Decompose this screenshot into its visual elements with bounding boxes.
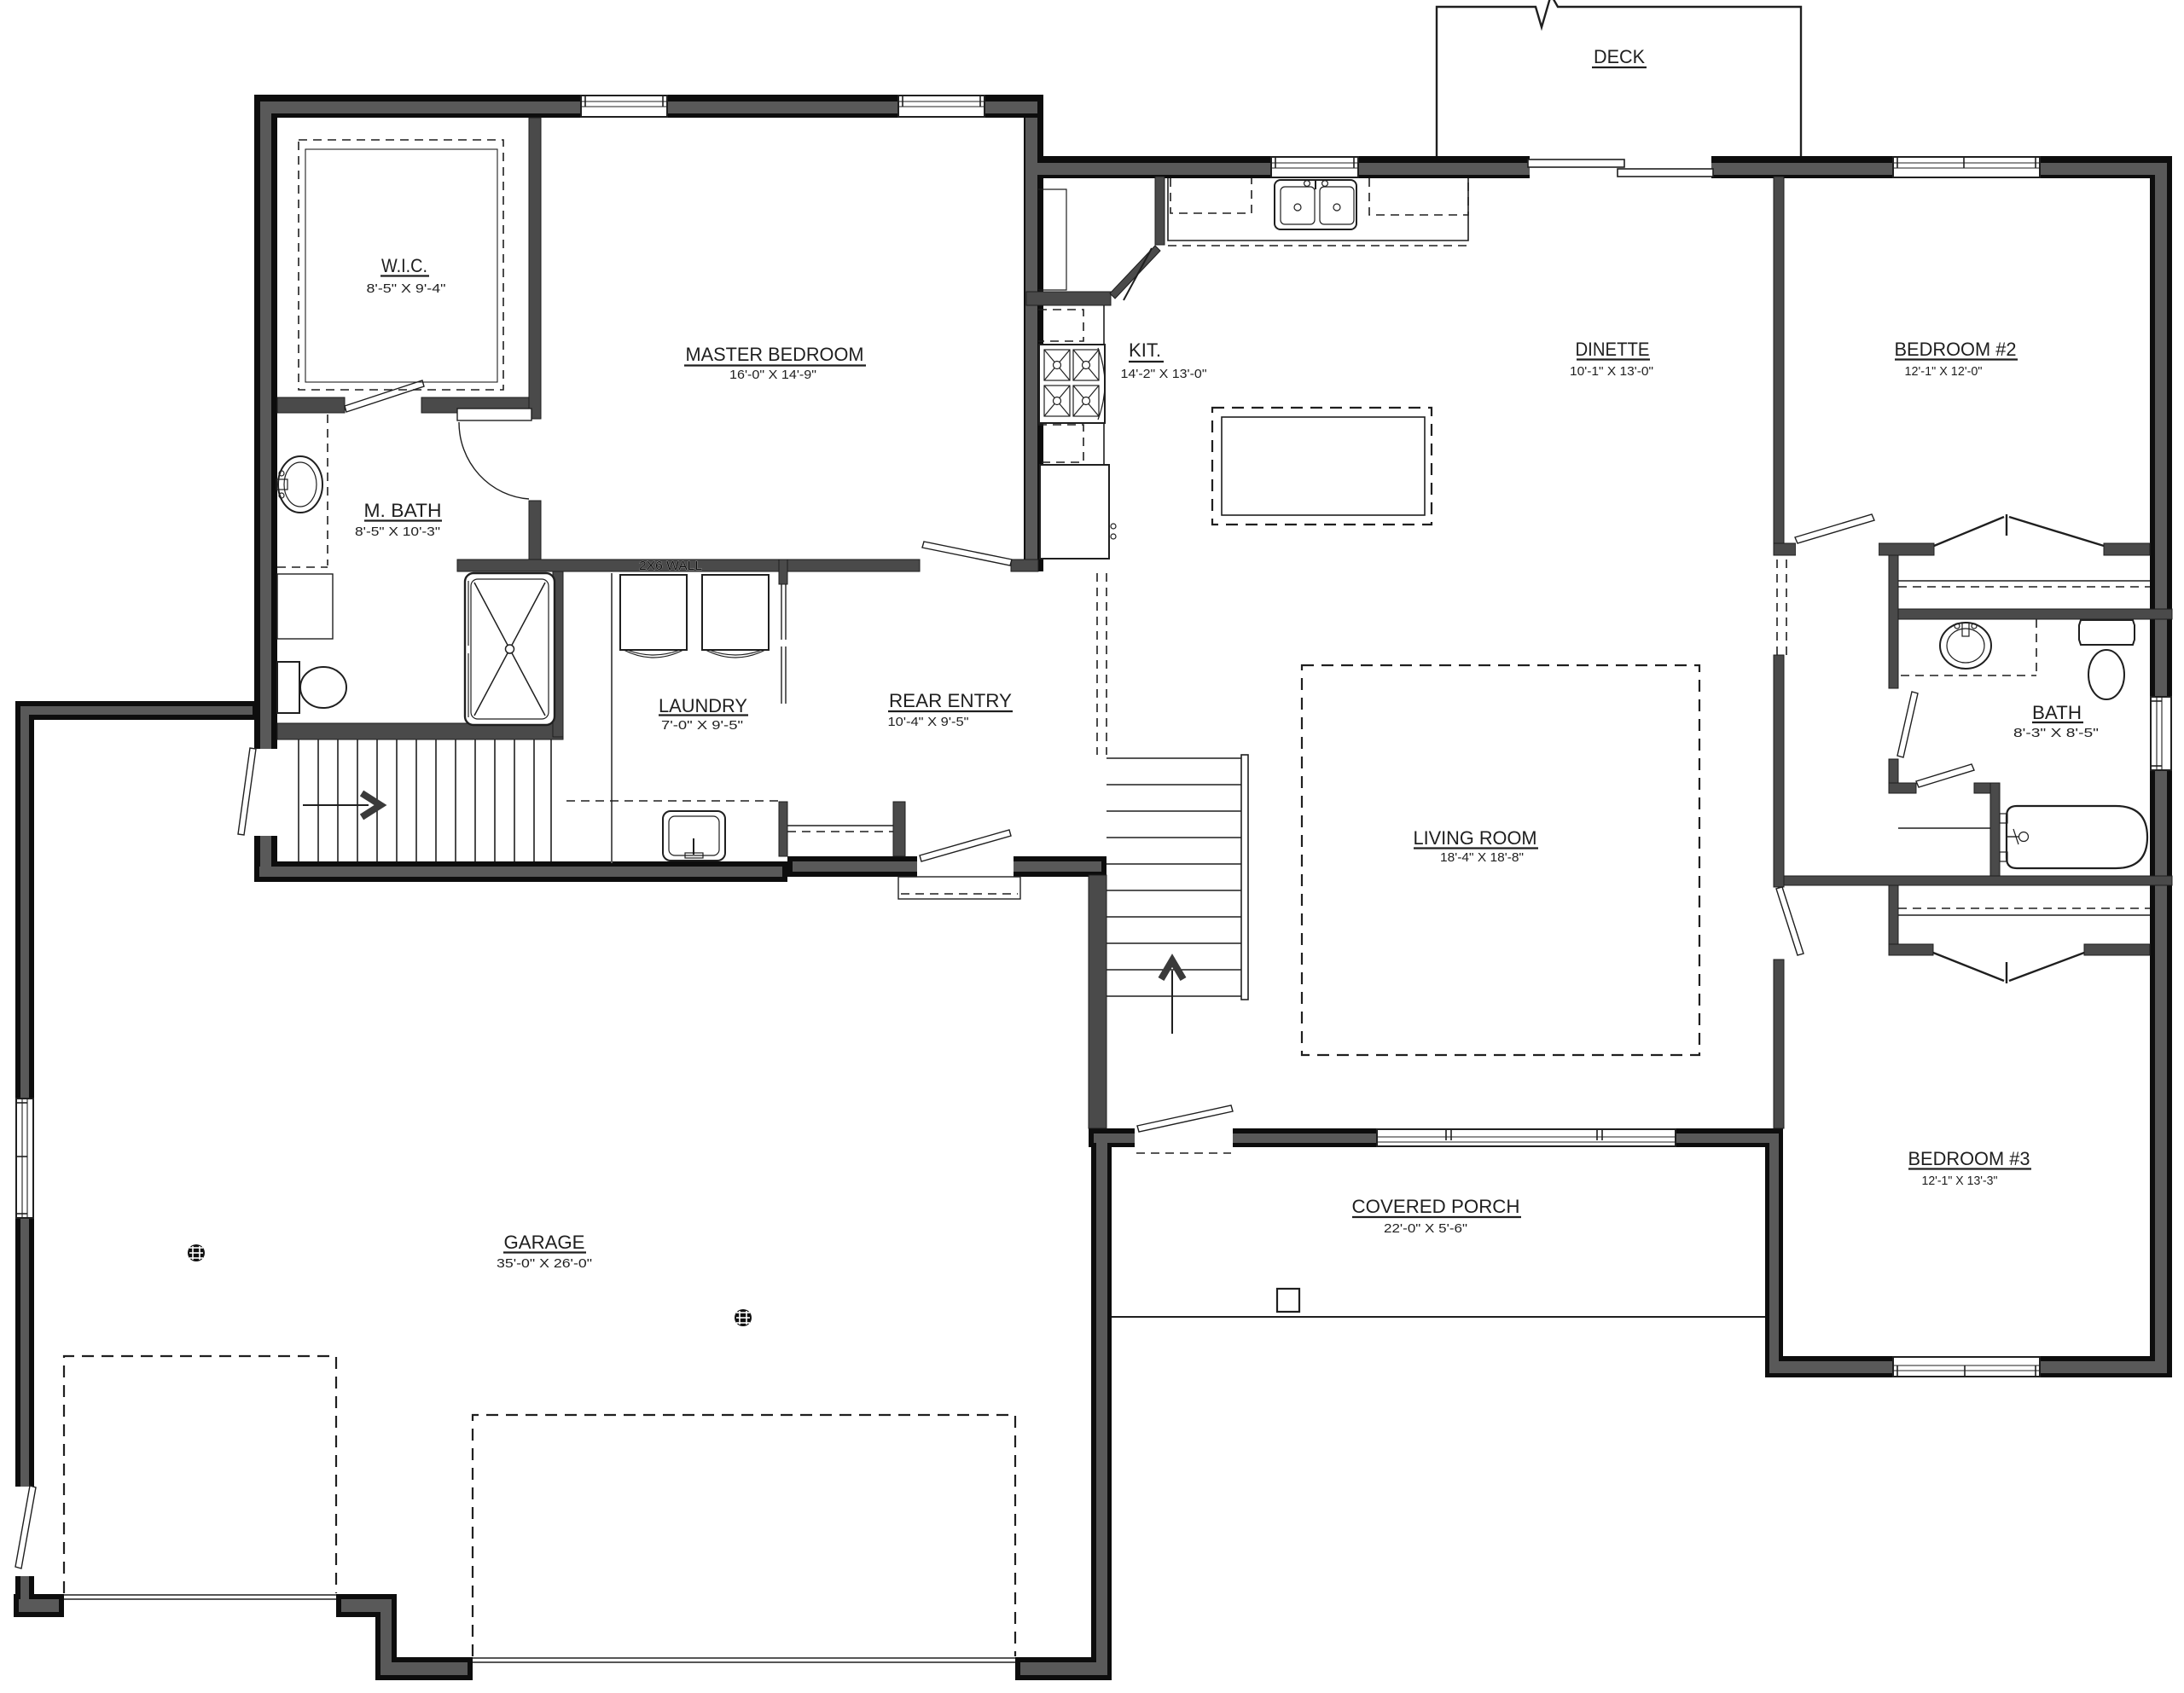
svg-text:BATH: BATH bbox=[2032, 702, 2082, 723]
svg-text:8'-5" X 9'-4": 8'-5" X 9'-4" bbox=[367, 281, 446, 296]
svg-text:16'-0" X 14'-9": 16'-0" X 14'-9" bbox=[729, 368, 816, 382]
svg-text:DECK: DECK bbox=[1594, 46, 1645, 67]
svg-text:MASTER BEDROOM: MASTER BEDROOM bbox=[686, 344, 864, 365]
svg-text:DINETTE: DINETTE bbox=[1576, 339, 1650, 360]
svg-text:BEDROOM #3: BEDROOM #3 bbox=[1908, 1148, 2030, 1169]
svg-text:10'-4" X 9'-5": 10'-4" X 9'-5" bbox=[888, 715, 969, 729]
svg-text:12'-1" X 13'-3": 12'-1" X 13'-3" bbox=[1922, 1174, 1998, 1188]
svg-text:W.I.C.: W.I.C. bbox=[381, 255, 427, 276]
svg-text:12'-1" X 12'-0": 12'-1" X 12'-0" bbox=[1905, 364, 1983, 379]
svg-text:GARAGE: GARAGE bbox=[504, 1232, 585, 1253]
svg-text:REAR ENTRY: REAR ENTRY bbox=[889, 690, 1012, 711]
svg-text:18'-4" X 18'-8": 18'-4" X 18'-8" bbox=[1440, 850, 1524, 865]
svg-text:35'-0" X 26'-0": 35'-0" X 26'-0" bbox=[497, 1256, 592, 1271]
svg-text:KIT.: KIT. bbox=[1129, 339, 1161, 361]
svg-text:8'-5" X 10'-3": 8'-5" X 10'-3" bbox=[355, 525, 440, 539]
svg-text:22'-0" X 5'-6": 22'-0" X 5'-6" bbox=[1384, 1221, 1467, 1236]
svg-text:LAUNDRY: LAUNDRY bbox=[659, 695, 747, 716]
svg-text:2X6 WALL: 2X6 WALL bbox=[639, 559, 702, 573]
svg-text:8'-3" X 8'-5": 8'-3" X 8'-5" bbox=[2013, 726, 2099, 740]
svg-text:LIVING ROOM: LIVING ROOM bbox=[1414, 827, 1537, 849]
svg-text:7'-0" X 9'-5": 7'-0" X 9'-5" bbox=[661, 718, 743, 733]
svg-text:COVERED PORCH: COVERED PORCH bbox=[1352, 1196, 1520, 1217]
svg-text:14'-2" X 13'-0": 14'-2" X 13'-0" bbox=[1121, 367, 1207, 381]
svg-text:10'-1" X 13'-0": 10'-1" X 13'-0" bbox=[1570, 364, 1653, 379]
svg-text:M. BATH: M. BATH bbox=[364, 500, 442, 521]
svg-text:BEDROOM #2: BEDROOM #2 bbox=[1895, 339, 2017, 360]
